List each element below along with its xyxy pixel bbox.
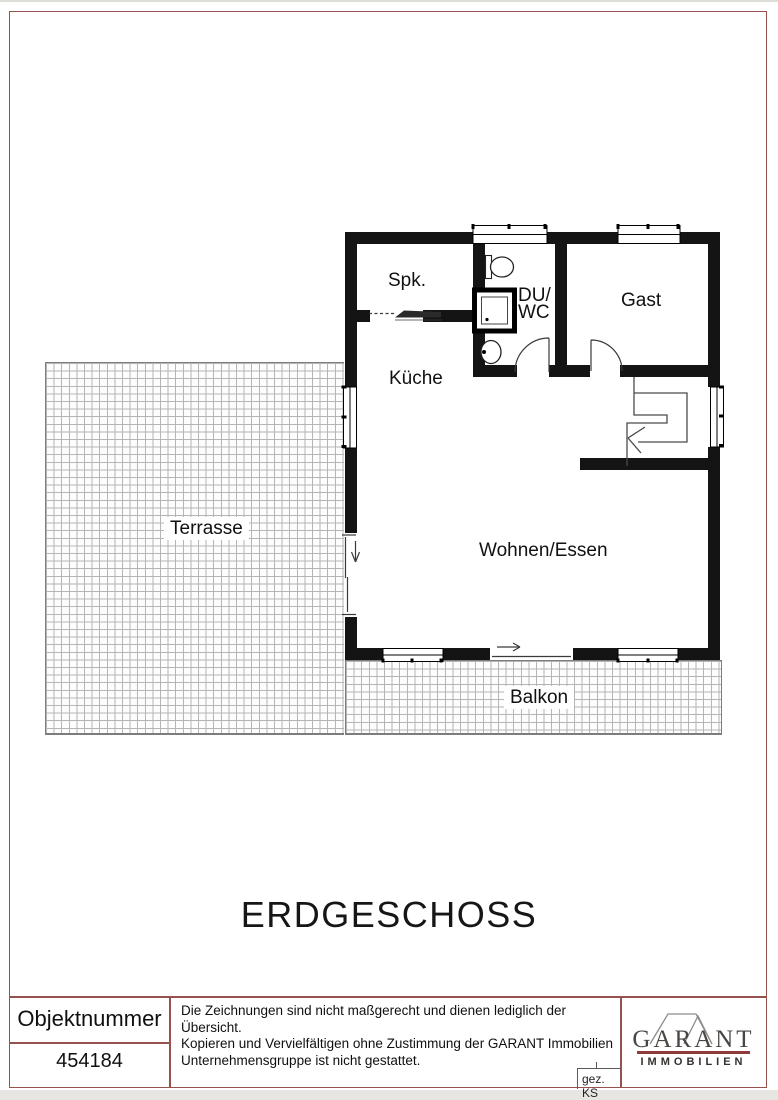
wall-segment bbox=[547, 232, 618, 244]
area-label-terrasse: Terrasse bbox=[164, 517, 249, 540]
footer-top-line bbox=[9, 996, 767, 998]
wall-segment bbox=[345, 448, 357, 533]
disclaimer-line: Die Zeichnungen sind nicht maßgerecht un… bbox=[181, 1003, 613, 1036]
objectnumber-divider bbox=[9, 1042, 170, 1044]
disclaimer-line: Unternehmensgruppe ist nicht gestattet. bbox=[181, 1053, 613, 1070]
scan-edge-top bbox=[0, 0, 778, 2]
floorplan-page: Spk. DU/ WC Gast Küche Wohnen/Essen Terr… bbox=[0, 0, 778, 1100]
wall-segment bbox=[549, 365, 590, 377]
wall-segment bbox=[357, 310, 370, 322]
wall-segment bbox=[345, 648, 383, 660]
wall-segment bbox=[620, 365, 708, 377]
wall-segment bbox=[345, 232, 473, 244]
room-label-wohnen-essen: Wohnen/Essen bbox=[479, 541, 608, 560]
disclaimer-text: Die Zeichnungen sind nicht maßgerecht un… bbox=[181, 1003, 613, 1069]
wall-segment bbox=[345, 232, 357, 387]
logo-brand-text: GARANT bbox=[620, 1026, 767, 1054]
wall-segment bbox=[573, 648, 618, 660]
wall-segment bbox=[423, 310, 473, 322]
room-label-du-wc: DU/ WC bbox=[518, 287, 551, 321]
wall-segment bbox=[580, 458, 720, 470]
wall-segment bbox=[473, 244, 485, 377]
wall-segment bbox=[708, 232, 720, 387]
room-label-spk: Spk. bbox=[388, 271, 426, 290]
scan-edge-bottom bbox=[0, 1090, 778, 1100]
drawn-by-box: gez. KS bbox=[577, 1068, 621, 1089]
object-number-value: 454184 bbox=[9, 1050, 170, 1073]
object-number-label: Objektnummer bbox=[9, 1006, 170, 1032]
wall-segment bbox=[555, 244, 567, 377]
wall-segment bbox=[443, 648, 490, 660]
area-label-balkon: Balkon bbox=[504, 686, 574, 709]
room-label-gast: Gast bbox=[621, 291, 661, 310]
wall-segment bbox=[708, 447, 720, 660]
drawn-by-text: gez. KS bbox=[582, 1072, 621, 1100]
disclaimer-line: Kopieren und Vervielfältigen ohne Zustim… bbox=[181, 1036, 613, 1053]
room-label-kueche: Küche bbox=[389, 369, 443, 388]
wall-segment bbox=[678, 648, 720, 660]
logo-subline-text: IMMOBILIEN bbox=[620, 1056, 767, 1068]
terrasse-area bbox=[45, 362, 344, 735]
wc-line: WC bbox=[518, 302, 550, 323]
page-title: ERDGESCHOSS bbox=[0, 894, 778, 936]
wall-segment bbox=[473, 365, 517, 377]
logo-rule bbox=[637, 1051, 750, 1054]
